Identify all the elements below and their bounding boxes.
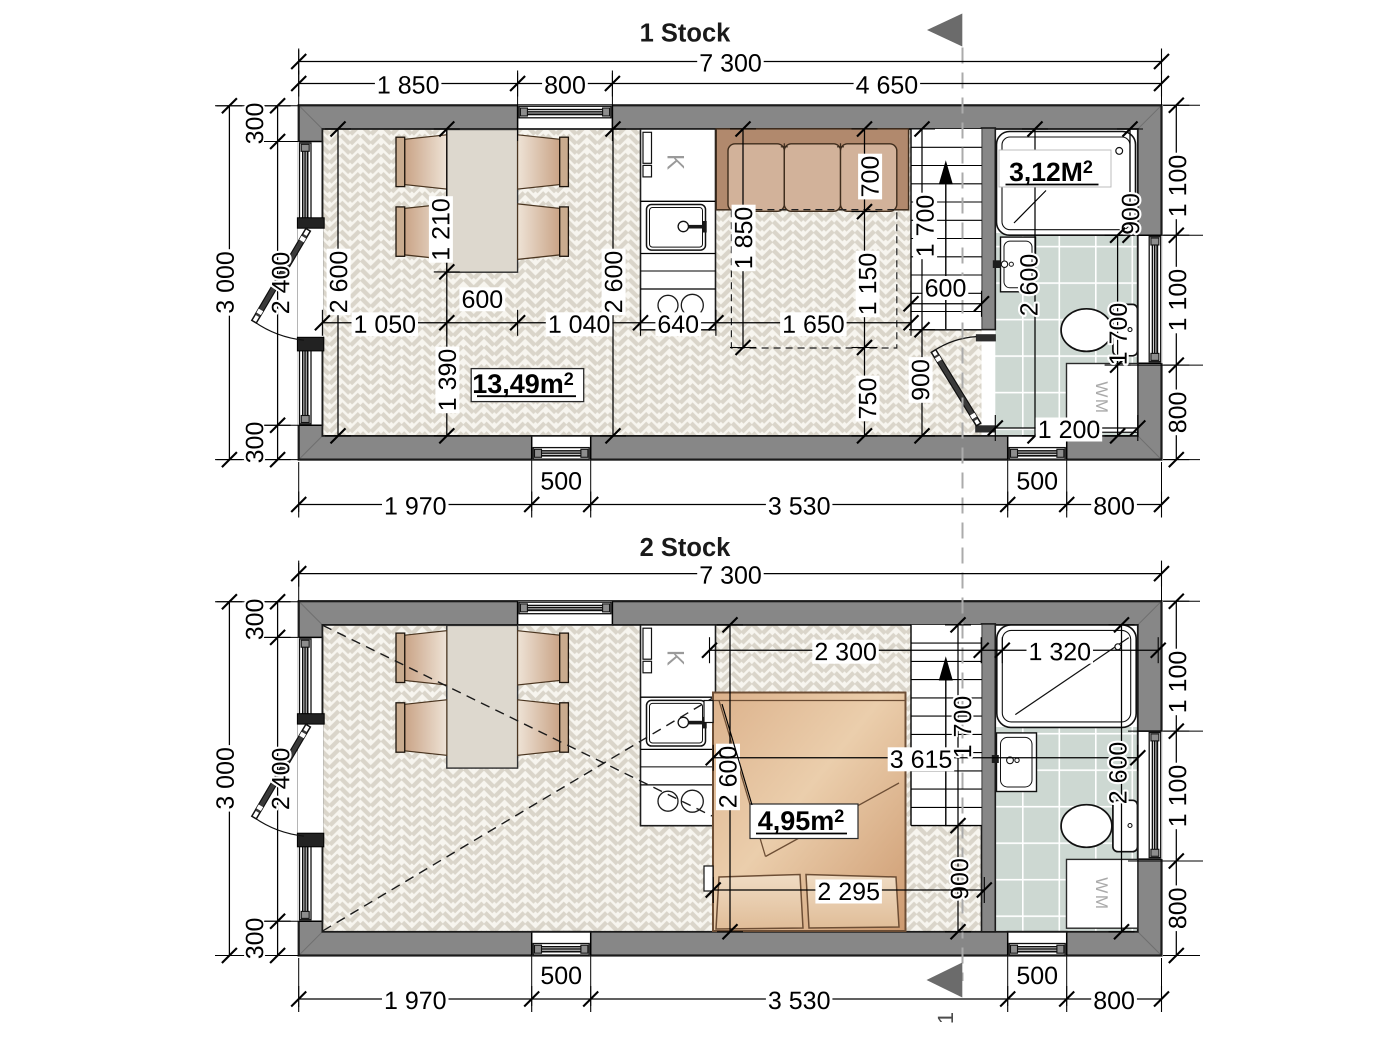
svg-text:2 600: 2 600 [600,251,628,314]
svg-text:600: 600 [925,274,967,302]
svg-text:1 050: 1 050 [354,311,417,339]
svg-text:3,12M2: 3,12M2 [1009,157,1093,187]
svg-text:300: 300 [241,918,269,960]
svg-text:1 150: 1 150 [854,253,882,316]
svg-text:1 100: 1 100 [1164,765,1192,828]
svg-text:2 Stock: 2 Stock [640,534,732,562]
svg-text:4 650: 4 650 [856,71,919,99]
svg-text:2 400: 2 400 [267,748,295,811]
svg-text:750: 750 [854,378,882,420]
svg-text:4,95m2: 4,95m2 [758,806,845,836]
svg-text:1 850: 1 850 [730,207,758,270]
svg-text:1 700: 1 700 [1105,303,1133,366]
svg-text:1 320: 1 320 [1029,638,1092,666]
svg-text:800: 800 [1164,392,1192,434]
svg-text:1 700: 1 700 [912,195,940,258]
svg-text:3 000: 3 000 [212,747,240,810]
svg-text:K: K [662,154,689,170]
svg-text:1 650: 1 650 [782,311,845,339]
svg-text:1 390: 1 390 [434,349,462,412]
svg-text:2 600: 2 600 [325,251,353,314]
svg-text:900: 900 [907,359,935,401]
svg-text:K: K [662,650,689,666]
svg-text:1 100: 1 100 [1164,269,1192,332]
svg-text:800: 800 [1093,987,1135,1015]
svg-text:2 600: 2 600 [714,746,742,809]
svg-text:500: 500 [1016,962,1058,990]
svg-text:500: 500 [540,467,582,495]
svg-text:7 300: 7 300 [699,49,762,77]
svg-text:2 300: 2 300 [814,638,877,666]
svg-text:2 400: 2 400 [267,252,295,315]
svg-text:WM: WM [1092,877,1111,910]
svg-text:800: 800 [544,71,586,99]
svg-text:1 970: 1 970 [384,492,447,520]
svg-text:3 615: 3 615 [890,746,953,774]
svg-text:1 210: 1 210 [427,198,455,261]
svg-text:900: 900 [946,858,974,900]
svg-text:3 000: 3 000 [212,251,240,314]
svg-text:640: 640 [657,311,699,339]
svg-text:1 100: 1 100 [1164,155,1192,218]
svg-text:2 295: 2 295 [817,878,880,906]
svg-text:800: 800 [1093,492,1135,520]
svg-text:WM: WM [1092,381,1111,414]
svg-text:1 Stock: 1 Stock [640,20,732,48]
svg-text:1 100: 1 100 [1164,651,1192,714]
svg-text:1 040: 1 040 [548,311,611,339]
svg-text:2 600: 2 600 [1015,254,1043,317]
svg-text:1 700: 1 700 [949,696,977,759]
svg-text:1 850: 1 850 [377,71,440,99]
svg-text:800: 800 [1164,887,1192,929]
svg-text:1 970: 1 970 [384,987,447,1015]
svg-text:13,49m2: 13,49m2 [472,369,574,399]
svg-text:3 530: 3 530 [768,492,831,520]
svg-text:500: 500 [540,962,582,990]
svg-text:3 530: 3 530 [768,987,831,1015]
svg-text:300: 300 [241,599,269,641]
svg-text:2 600: 2 600 [1104,742,1132,805]
svg-text:300: 300 [241,422,269,464]
svg-text:500: 500 [1016,467,1058,495]
svg-text:1: 1 [933,1012,958,1024]
svg-text:900: 900 [1117,193,1145,235]
svg-text:7 300: 7 300 [699,562,762,590]
svg-text:300: 300 [241,103,269,145]
svg-text:1 200: 1 200 [1038,416,1101,444]
svg-text:700: 700 [857,156,885,198]
svg-text:600: 600 [461,286,503,314]
